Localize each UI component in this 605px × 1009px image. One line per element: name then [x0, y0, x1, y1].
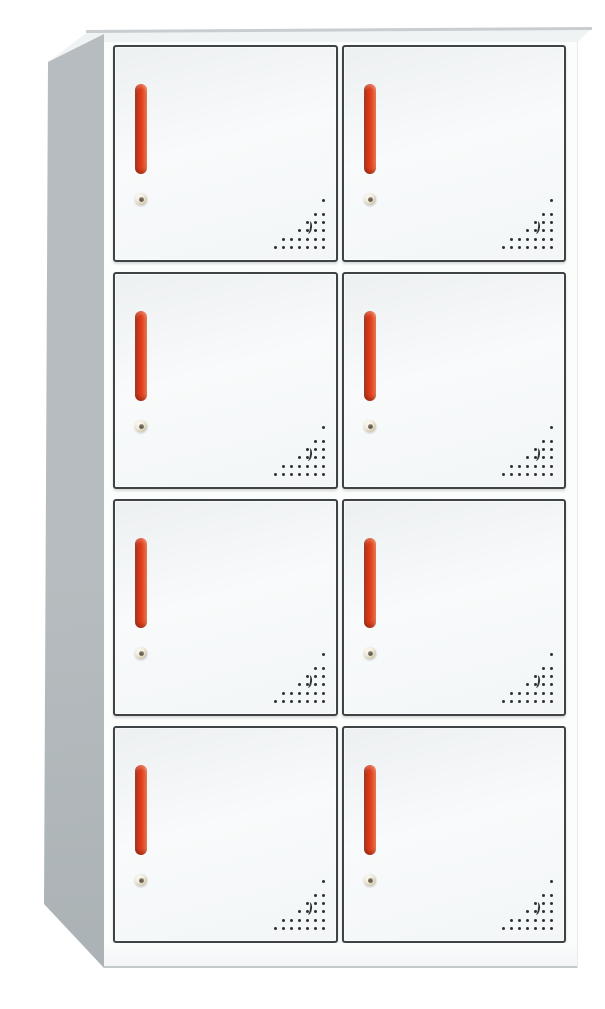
vent-dot: [542, 440, 545, 443]
vent-dot: [322, 456, 325, 459]
vent-dot: [322, 426, 325, 429]
vent-dot: [526, 683, 529, 686]
vent-dot: [322, 229, 325, 232]
vent-dot: [282, 473, 285, 476]
ventilation-holes: [274, 653, 325, 703]
vent-dot: [298, 700, 301, 703]
vent-dot: [534, 465, 537, 468]
vent-dot: [282, 700, 285, 703]
vent-dot: [550, 465, 553, 468]
locker-door[interactable]: [113, 45, 338, 262]
vent-dot: [542, 465, 545, 468]
vent-dot: [314, 246, 317, 249]
vent-dot: [298, 229, 301, 232]
vent-crescent-hole: [304, 902, 313, 916]
vent-dot: [542, 221, 545, 224]
doors-grid: [113, 45, 566, 943]
vent-dot: [518, 927, 521, 930]
vent-dot: [550, 653, 553, 656]
vent-dot: [550, 910, 553, 913]
vent-crescent-hole: [304, 448, 313, 462]
vent-dot: [518, 465, 521, 468]
vent-dot: [550, 229, 553, 232]
vent-dot: [526, 700, 529, 703]
vent-dot: [298, 910, 301, 913]
locker-door[interactable]: [342, 272, 566, 489]
vent-dot: [510, 246, 513, 249]
keyhole-lock-icon[interactable]: [364, 420, 376, 432]
vent-dot: [322, 440, 325, 443]
vent-dot: [550, 894, 553, 897]
vent-dot: [518, 919, 521, 922]
vent-dot: [550, 199, 553, 202]
vent-dot: [542, 910, 545, 913]
vent-dot: [550, 683, 553, 686]
vent-dot: [542, 456, 545, 459]
vent-dot: [298, 456, 301, 459]
vent-dot: [298, 465, 301, 468]
vent-dot: [502, 927, 505, 930]
door-handle[interactable]: [135, 765, 147, 855]
vent-dot: [550, 692, 553, 695]
vent-dot: [526, 910, 529, 913]
vent-dot: [550, 426, 553, 429]
vent-dot: [322, 465, 325, 468]
vent-dot: [542, 675, 545, 678]
vent-dot: [314, 910, 317, 913]
vent-dot: [290, 927, 293, 930]
vent-crescent-hole: [532, 221, 541, 235]
door-handle[interactable]: [364, 311, 376, 401]
vent-dot: [550, 246, 553, 249]
vent-dot: [542, 927, 545, 930]
ventilation-holes: [274, 426, 325, 476]
vent-dot: [314, 692, 317, 695]
locker-door[interactable]: [113, 272, 338, 489]
vent-dot: [306, 238, 309, 241]
vent-dot: [322, 199, 325, 202]
vent-dot: [314, 456, 317, 459]
vent-dot: [550, 448, 553, 451]
vent-dot: [322, 927, 325, 930]
vent-dot: [322, 213, 325, 216]
vent-crescent-hole: [304, 221, 313, 235]
vent-dot: [290, 473, 293, 476]
vent-dot: [534, 700, 537, 703]
cabinet-front-face: [104, 42, 578, 968]
vent-dot: [314, 229, 317, 232]
vent-dot: [550, 473, 553, 476]
vent-dot: [274, 473, 277, 476]
vent-dot: [322, 221, 325, 224]
vent-crescent-hole: [532, 902, 541, 916]
vent-dot: [306, 473, 309, 476]
vent-dot: [282, 238, 285, 241]
vent-dot: [518, 692, 521, 695]
vent-dot: [298, 692, 301, 695]
vent-dot: [534, 919, 537, 922]
vent-dot: [510, 919, 513, 922]
vent-dot: [542, 919, 545, 922]
vent-dot: [322, 675, 325, 678]
vent-dot: [550, 238, 553, 241]
keyhole-lock-icon[interactable]: [364, 647, 376, 659]
vent-dot: [306, 465, 309, 468]
vent-dot: [322, 692, 325, 695]
door-handle[interactable]: [364, 84, 376, 174]
vent-dot: [322, 880, 325, 883]
vent-dot: [526, 919, 529, 922]
vent-dot: [298, 238, 301, 241]
vent-dot: [306, 919, 309, 922]
keyhole-lock-icon[interactable]: [135, 647, 147, 659]
vent-dot: [314, 683, 317, 686]
vent-dot: [510, 692, 513, 695]
vent-dot: [274, 246, 277, 249]
keyhole-lock-icon[interactable]: [364, 874, 376, 886]
vent-dot: [314, 465, 317, 468]
vent-dot: [550, 880, 553, 883]
ventilation-holes: [274, 880, 325, 930]
door-handle[interactable]: [364, 538, 376, 628]
vent-dot: [314, 919, 317, 922]
vent-dot: [306, 692, 309, 695]
vent-dot: [322, 667, 325, 670]
vent-dot: [290, 246, 293, 249]
vent-dot: [550, 700, 553, 703]
vent-dot: [518, 700, 521, 703]
ventilation-holes: [274, 199, 325, 249]
door-handle[interactable]: [135, 538, 147, 628]
vent-dot: [314, 894, 317, 897]
vent-dot: [542, 473, 545, 476]
vent-dot: [282, 927, 285, 930]
vent-dot: [282, 692, 285, 695]
vent-dot: [534, 692, 537, 695]
keyhole-lock-icon[interactable]: [364, 193, 376, 205]
vent-dot: [306, 927, 309, 930]
vent-dot: [322, 700, 325, 703]
vent-dot: [282, 246, 285, 249]
vent-dot: [322, 473, 325, 476]
ventilation-holes: [502, 426, 553, 476]
vent-dot: [322, 683, 325, 686]
vent-dot: [550, 919, 553, 922]
vent-dot: [550, 675, 553, 678]
vent-dot: [510, 465, 513, 468]
vent-dot: [542, 902, 545, 905]
vent-dot: [550, 667, 553, 670]
vent-dot: [542, 683, 545, 686]
vent-dot: [282, 919, 285, 922]
door-handle[interactable]: [364, 765, 376, 855]
vent-dot: [314, 213, 317, 216]
vent-dot: [306, 246, 309, 249]
vent-dot: [322, 238, 325, 241]
keyhole-lock-icon[interactable]: [135, 874, 147, 886]
vent-dot: [322, 902, 325, 905]
vent-dot: [550, 902, 553, 905]
vent-dot: [542, 700, 545, 703]
vent-dot: [542, 213, 545, 216]
vent-dot: [542, 229, 545, 232]
ventilation-holes: [502, 199, 553, 249]
vent-dot: [322, 653, 325, 656]
vent-dot: [290, 692, 293, 695]
vent-dot: [502, 700, 505, 703]
vent-dot: [502, 473, 505, 476]
vent-dot: [298, 927, 301, 930]
vent-dot: [542, 238, 545, 241]
vent-dot: [510, 473, 513, 476]
product-image: [0, 0, 605, 1009]
vent-crescent-hole: [532, 675, 541, 689]
vent-dot: [298, 473, 301, 476]
vent-dot: [322, 448, 325, 451]
vent-dot: [550, 213, 553, 216]
vent-dot: [534, 927, 537, 930]
keyhole-lock-icon[interactable]: [135, 420, 147, 432]
vent-dot: [550, 927, 553, 930]
vent-dot: [306, 700, 309, 703]
vent-crescent-hole: [304, 675, 313, 689]
vent-dot: [510, 700, 513, 703]
vent-dot: [550, 221, 553, 224]
vent-dot: [542, 692, 545, 695]
vent-dot: [534, 473, 537, 476]
vent-dot: [322, 894, 325, 897]
vent-dot: [526, 465, 529, 468]
vent-dot: [282, 465, 285, 468]
ventilation-holes: [502, 880, 553, 930]
cabinet-base-plinth: [104, 943, 577, 968]
vent-dot: [542, 667, 545, 670]
vent-dot: [314, 221, 317, 224]
keyhole-lock-icon[interactable]: [135, 193, 147, 205]
vent-dot: [314, 667, 317, 670]
vent-dot: [526, 456, 529, 459]
vent-dot: [542, 448, 545, 451]
vent-dot: [518, 473, 521, 476]
vent-dot: [274, 700, 277, 703]
vent-dot: [298, 919, 301, 922]
vent-dot: [314, 927, 317, 930]
vent-dot: [518, 238, 521, 241]
vent-dot: [314, 238, 317, 241]
vent-dot: [314, 700, 317, 703]
door-handle[interactable]: [135, 311, 147, 401]
vent-dot: [290, 919, 293, 922]
vent-dot: [502, 246, 505, 249]
vent-dot: [314, 675, 317, 678]
vent-dot: [322, 910, 325, 913]
vent-dot: [314, 902, 317, 905]
vent-dot: [322, 919, 325, 922]
locker-door[interactable]: [342, 499, 566, 716]
vent-dot: [534, 238, 537, 241]
vent-dot: [290, 465, 293, 468]
vent-dot: [314, 473, 317, 476]
vent-dot: [322, 246, 325, 249]
vent-dot: [298, 683, 301, 686]
vent-dot: [526, 246, 529, 249]
vent-dot: [526, 692, 529, 695]
vent-dot: [542, 246, 545, 249]
vent-dot: [518, 246, 521, 249]
locker-door[interactable]: [113, 726, 338, 943]
vent-dot: [290, 700, 293, 703]
vent-dot: [526, 238, 529, 241]
vent-dot: [550, 456, 553, 459]
door-handle[interactable]: [135, 84, 147, 174]
vent-dot: [290, 238, 293, 241]
vent-dot: [526, 229, 529, 232]
vent-dot: [534, 246, 537, 249]
vent-dot: [510, 238, 513, 241]
vent-dot: [314, 448, 317, 451]
locker-door[interactable]: [113, 499, 338, 716]
locker-door[interactable]: [342, 726, 566, 943]
vent-dot: [274, 927, 277, 930]
vent-dot: [298, 246, 301, 249]
vent-dot: [510, 927, 513, 930]
vent-dot: [526, 473, 529, 476]
vent-crescent-hole: [532, 448, 541, 462]
vent-dot: [526, 927, 529, 930]
vent-dot: [542, 894, 545, 897]
vent-dot: [550, 440, 553, 443]
locker-door[interactable]: [342, 45, 566, 262]
ventilation-holes: [502, 653, 553, 703]
vent-dot: [314, 440, 317, 443]
